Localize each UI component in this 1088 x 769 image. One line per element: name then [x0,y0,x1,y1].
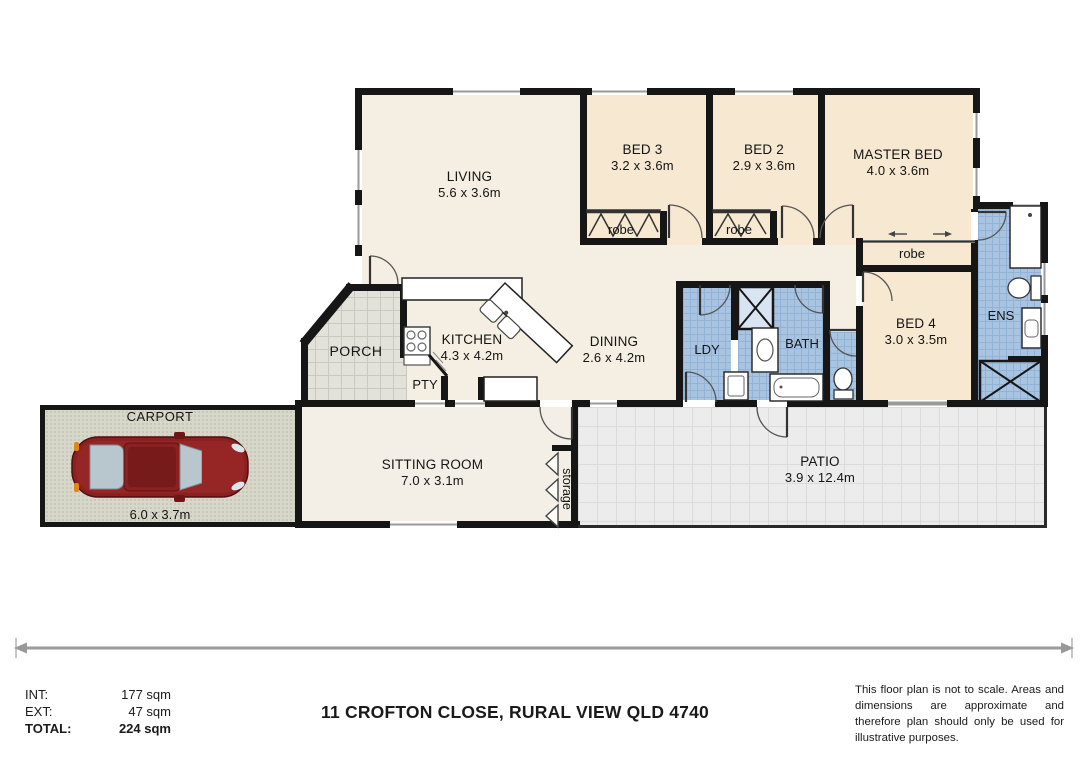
room-label-pty: PTY [405,377,445,392]
robe-label-bed2: robe [709,222,769,237]
disclaimer-text: This floor plan is not to scale. Areas a… [855,683,1064,747]
room-label-master-bed: MASTER BED 4.0 x 3.6m [822,146,974,180]
room-name: BED 2 [708,141,820,158]
wc-hall-floor [830,285,856,332]
room-label-storage: storage [560,458,574,520]
robe-label-master: robe [876,246,948,261]
room-name: MASTER BED [822,146,974,163]
floorplan-page: LIVING 5.6 x 3.6m BED 3 3.2 x 3.6m BED 2… [0,0,1088,769]
area-label: TOTAL: [25,720,93,737]
room-dims: 7.0 x 3.1m [330,473,535,490]
room-label-carport: CARPORT [60,409,260,424]
room-label-patio: PATIO 3.9 x 12.4m [745,453,895,487]
room-name: BED 4 [861,315,971,332]
room-label-ldy: LDY [683,342,731,357]
area-row-int: INT: 177 sqm [25,686,171,703]
room-label-ens: ENS [978,308,1024,323]
area-row-ext: EXT: 47 sqm [25,703,171,720]
room-dims: 2.9 x 3.6m [708,158,820,175]
room-dims-carport: 6.0 x 3.7m [62,507,258,522]
room-label-sitting-room: SITTING ROOM 7.0 x 3.1m [330,456,535,490]
room-label-bed3: BED 3 3.2 x 3.6m [585,141,700,175]
room-label-bath: BATH [776,336,828,351]
property-address-title: 11 CROFTON CLOSE, RURAL VIEW QLD 4740 [170,702,860,723]
room-name: KITCHEN [410,331,534,348]
room-label-bed2: BED 2 2.9 x 3.6m [708,141,820,175]
area-summary: INT: 177 sqm EXT: 47 sqm TOTAL: 224 sqm [25,686,171,737]
area-row-total: TOTAL: 224 sqm [25,720,171,737]
room-dims: 2.6 x 4.2m [552,350,676,367]
room-dims: 3.2 x 3.6m [585,158,700,175]
room-label-dining: DINING 2.6 x 4.2m [552,333,676,367]
room-dims: 4.0 x 3.6m [822,163,974,180]
room-label-kitchen: KITCHEN 4.3 x 4.2m [410,331,534,365]
carport-floor [45,410,297,522]
room-name: PATIO [745,453,895,470]
room-name: BED 3 [585,141,700,158]
room-label-porch: PORCH [312,343,400,359]
ensuite-floor [978,209,1041,402]
room-dims: 3.9 x 12.4m [745,470,895,487]
room-dims: 3.0 x 3.5m [861,332,971,349]
room-dims: 4.3 x 4.2m [410,348,534,365]
wc-floor [830,332,856,402]
room-label-living: LIVING 5.6 x 3.6m [377,168,562,202]
area-value: 47 sqm [93,703,171,720]
area-value: 224 sqm [93,720,171,737]
area-label: INT: [25,686,93,703]
room-name: SITTING ROOM [330,456,535,473]
area-value: 177 sqm [93,686,171,703]
room-name: DINING [552,333,676,350]
room-label-bed4: BED 4 3.0 x 3.5m [861,315,971,349]
area-label: EXT: [25,703,93,720]
room-dims: 5.6 x 3.6m [377,185,562,202]
room-name: LIVING [377,168,562,185]
robe-label-bed3: robe [585,222,657,237]
dimension-arrow [14,638,1074,658]
